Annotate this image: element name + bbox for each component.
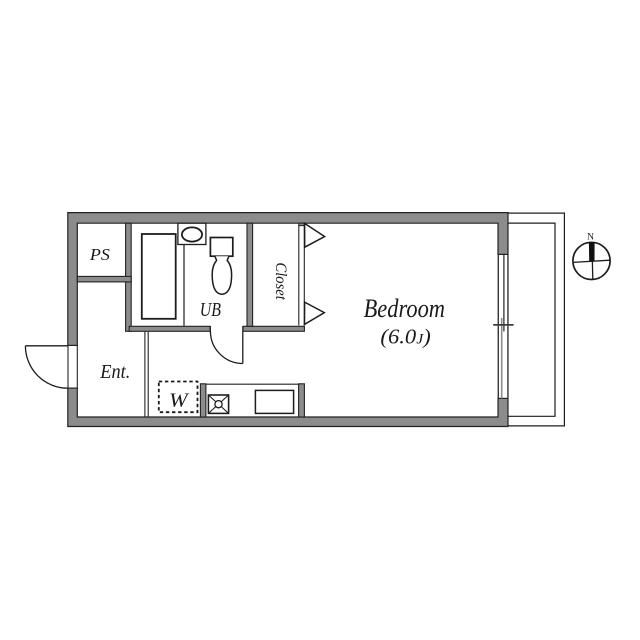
svg-text:Closet: Closet (272, 263, 289, 301)
svg-text:Ent.: Ent. (99, 362, 130, 383)
svg-text:UB: UB (200, 299, 221, 321)
svg-text:(6.0J): (6.0J) (380, 324, 430, 348)
svg-text:N: N (587, 231, 594, 242)
svg-text:Bedroom: Bedroom (364, 293, 445, 323)
svg-text:PS: PS (89, 245, 110, 264)
svg-text:W: W (169, 390, 190, 412)
